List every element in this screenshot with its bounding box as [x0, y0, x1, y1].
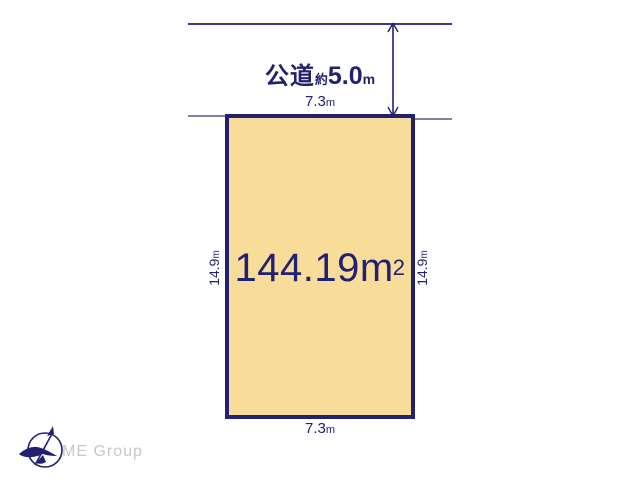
- plot-area-label: 144.19m2: [225, 246, 415, 291]
- logo-text: ME Group: [62, 443, 143, 461]
- road-lower-edge-line-right: [415, 118, 452, 120]
- plot-area-unit: m: [360, 246, 394, 290]
- frontage-bottom-label: 7.3m: [225, 420, 415, 438]
- frontage-top-label: 7.3m: [225, 93, 415, 111]
- depth-left-value: 14.9: [206, 259, 222, 286]
- depth-right-unit: m: [419, 250, 430, 258]
- road-width-value: 5.0: [328, 62, 363, 90]
- depth-right-label: 14.9m: [414, 250, 432, 286]
- frontage-top-value: 7.3: [305, 93, 326, 110]
- road-width-unit: m: [363, 71, 375, 87]
- frontage-bottom-unit: m: [326, 424, 335, 436]
- plot-area-value: 144.19: [235, 246, 360, 290]
- frontage-bottom-value: 7.3: [305, 420, 326, 437]
- road-approx: 約: [315, 72, 328, 87]
- depth-left-unit: m: [211, 250, 222, 258]
- road-name: 公道: [265, 63, 315, 90]
- north-compass-icon: [18, 423, 68, 475]
- road-upper-edge-line: [188, 23, 452, 25]
- plot-area-exponent: 2: [393, 255, 406, 280]
- road-lower-edge-line-left: [188, 115, 225, 117]
- frontage-top-unit: m: [326, 97, 335, 109]
- depth-right-value: 14.9: [414, 259, 430, 286]
- depth-left-label: 14.9m: [206, 250, 224, 286]
